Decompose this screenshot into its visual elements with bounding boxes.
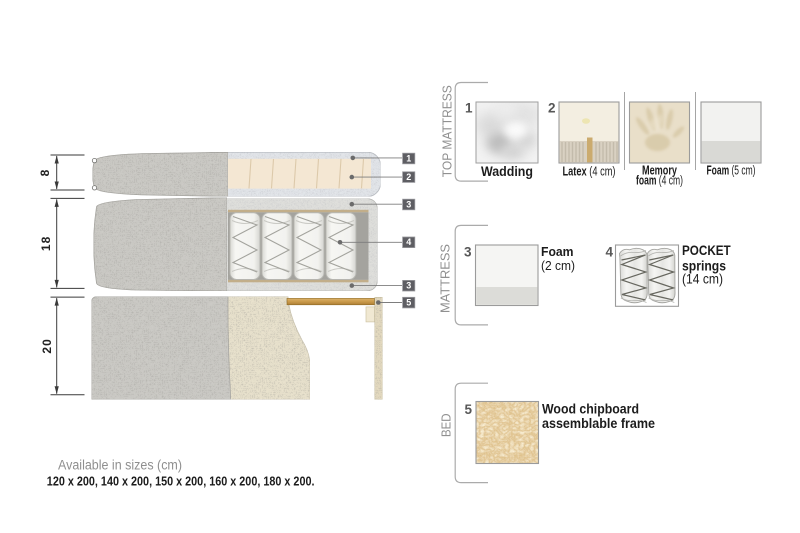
svg-text:4: 4 bbox=[606, 245, 614, 260]
svg-text:POCKET: POCKET bbox=[682, 243, 731, 258]
svg-text:5: 5 bbox=[465, 402, 473, 417]
svg-text:3: 3 bbox=[464, 245, 472, 260]
svg-text:1: 1 bbox=[406, 153, 411, 163]
svg-text:120 x 200, 140 x 200, 150 x 20: 120 x 200, 140 x 200, 150 x 200, 160 x 2… bbox=[47, 474, 315, 488]
svg-text:Available in sizes (cm): Available in sizes (cm) bbox=[58, 457, 182, 472]
svg-text:20: 20 bbox=[40, 338, 54, 353]
svg-text:(14 cm): (14 cm) bbox=[682, 272, 723, 287]
svg-text:Foam: Foam bbox=[541, 244, 574, 259]
svg-text:4: 4 bbox=[406, 237, 411, 247]
svg-text:Foam (5 cm): Foam (5 cm) bbox=[707, 164, 756, 178]
svg-text:TOP MATTRESS: TOP MATTRESS bbox=[441, 85, 455, 177]
svg-text:Wadding: Wadding bbox=[481, 164, 533, 179]
svg-text:Latex (4 cm): Latex (4 cm) bbox=[563, 164, 616, 178]
svg-text:2: 2 bbox=[406, 172, 411, 182]
svg-text:8: 8 bbox=[38, 169, 52, 177]
svg-text:(2 cm): (2 cm) bbox=[541, 258, 575, 273]
svg-text:2: 2 bbox=[548, 101, 556, 116]
svg-text:5: 5 bbox=[406, 298, 411, 308]
svg-text:18: 18 bbox=[39, 236, 53, 251]
svg-text:assemblable frame: assemblable frame bbox=[542, 415, 655, 431]
svg-text:3: 3 bbox=[406, 281, 411, 291]
svg-text:foam (4 cm): foam (4 cm) bbox=[636, 174, 683, 188]
svg-text:3: 3 bbox=[406, 199, 411, 209]
svg-text:1: 1 bbox=[465, 101, 473, 116]
svg-text:MATTRESS: MATTRESS bbox=[439, 244, 453, 313]
svg-text:BED: BED bbox=[440, 413, 454, 437]
